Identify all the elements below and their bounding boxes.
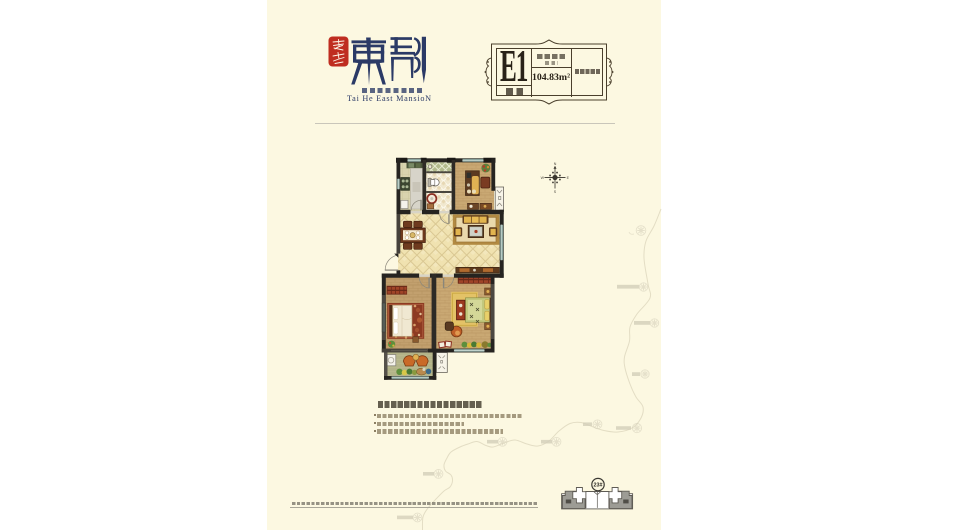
svg-text:E: E xyxy=(567,176,570,180)
svg-text:N: N xyxy=(554,162,557,166)
svg-text:W: W xyxy=(541,176,545,180)
svg-text:23#: 23# xyxy=(594,483,603,489)
svg-text:S: S xyxy=(554,190,557,194)
